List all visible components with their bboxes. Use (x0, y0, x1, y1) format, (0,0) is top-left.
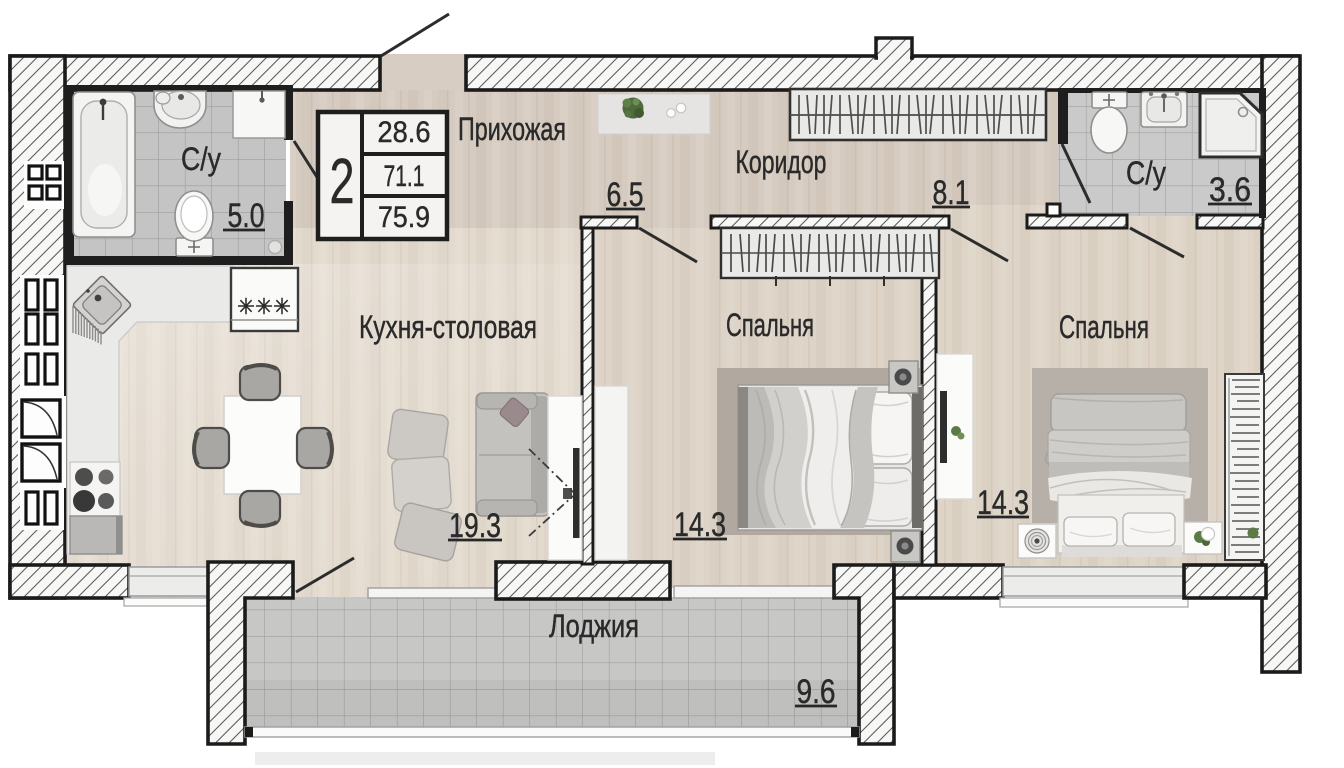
svg-text:С/у: С/у (181, 141, 221, 177)
svg-text:С/у: С/у (1126, 155, 1166, 191)
svg-text:Кухня-столовая: Кухня-столовая (359, 309, 537, 345)
svg-text:Спальня: Спальня (726, 307, 814, 343)
svg-text:Спальня: Спальня (1059, 309, 1149, 345)
svg-text:28.6: 28.6 (378, 116, 431, 149)
svg-text:2: 2 (330, 145, 355, 217)
svg-text:Лоджия: Лоджия (549, 608, 639, 644)
svg-text:✳✳✳: ✳✳✳ (237, 294, 291, 319)
svg-text:75.9: 75.9 (378, 201, 430, 234)
svg-text:71.1: 71.1 (384, 160, 425, 193)
svg-text:Прихожая: Прихожая (458, 111, 566, 147)
svg-text:Коридор: Коридор (736, 144, 827, 180)
